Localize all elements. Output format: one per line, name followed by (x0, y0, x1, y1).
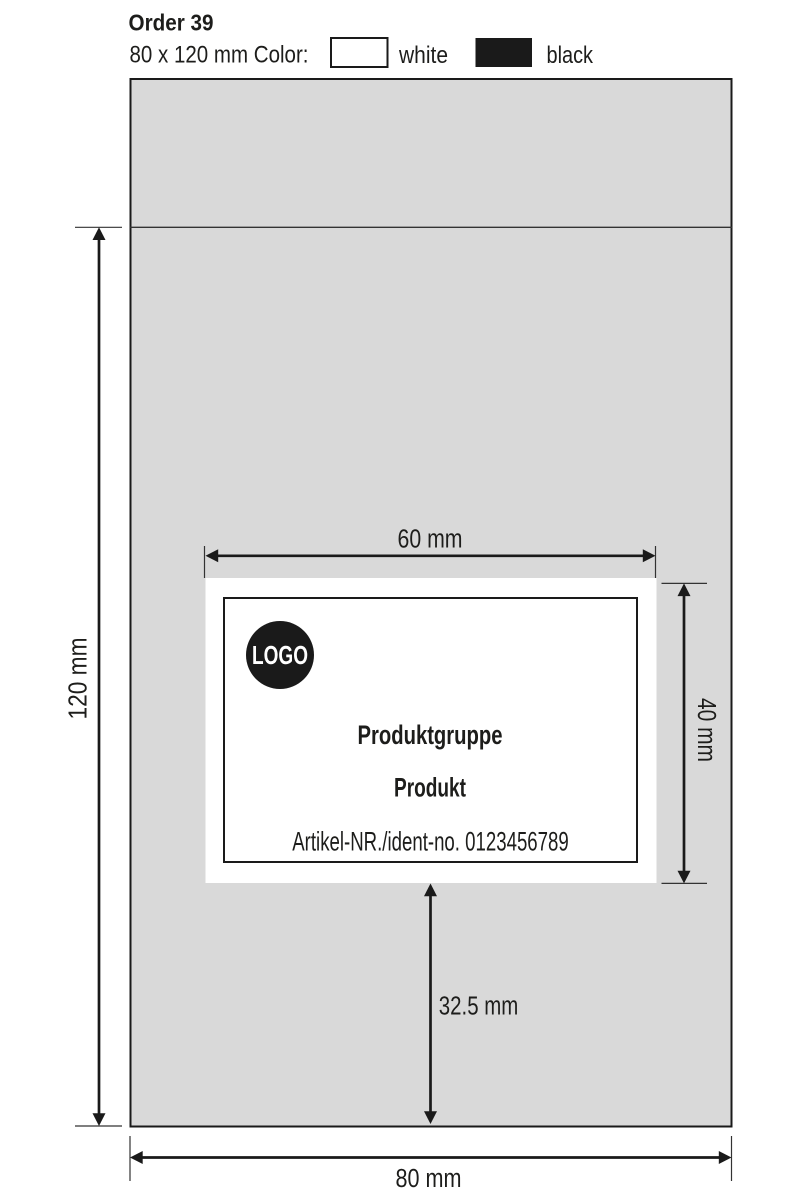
svg-text:Produktgruppe: Produktgruppe (358, 720, 503, 750)
svg-text:80 mm: 80 mm (396, 1165, 462, 1193)
svg-text:Artikel-NR./ident-no. 01234567: Artikel-NR./ident-no. 0123456789 (292, 827, 569, 857)
svg-text:60 mm: 60 mm (398, 526, 463, 554)
svg-text:40 mm: 40 mm (692, 698, 720, 762)
svg-text:Produkt: Produkt (394, 773, 466, 803)
svg-text:80 x 120 mm Color:: 80 x 120 mm Color: (130, 41, 309, 68)
svg-text:black: black (547, 42, 594, 69)
svg-text:120 mm: 120 mm (65, 638, 93, 720)
svg-text:Order 39: Order 39 (129, 10, 214, 36)
svg-text:LOGO: LOGO (252, 642, 308, 670)
svg-text:32.5 mm: 32.5 mm (439, 992, 519, 1020)
svg-text:white: white (398, 42, 448, 69)
